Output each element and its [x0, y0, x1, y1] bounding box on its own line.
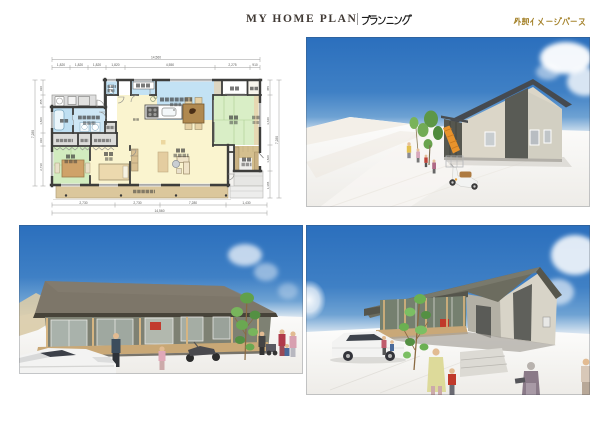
- svg-text:1,820: 1,820: [111, 63, 119, 67]
- svg-text:1,365: 1,365: [266, 181, 270, 189]
- svg-text:7,280: 7,280: [275, 136, 279, 144]
- svg-text:910: 910: [39, 138, 43, 143]
- svg-text:1,820: 1,820: [39, 117, 43, 125]
- svg-text:910: 910: [39, 86, 43, 91]
- svg-text:2,730: 2,730: [79, 201, 87, 205]
- svg-text:1,820: 1,820: [75, 63, 83, 67]
- svg-text:1,820: 1,820: [266, 155, 270, 163]
- svg-text:455: 455: [266, 86, 270, 91]
- svg-text:2,730: 2,730: [133, 201, 141, 205]
- svg-text:1,820: 1,820: [93, 63, 101, 67]
- svg-text:910: 910: [252, 63, 258, 67]
- svg-text:14,560: 14,560: [154, 209, 164, 213]
- svg-text:4,550: 4,550: [166, 63, 174, 67]
- svg-text:7,280: 7,280: [31, 130, 35, 138]
- svg-text:14,560: 14,560: [151, 55, 161, 59]
- svg-text:7,280: 7,280: [189, 201, 197, 205]
- svg-text:2,275: 2,275: [228, 63, 236, 67]
- svg-text:1,430: 1,430: [242, 201, 250, 205]
- svg-text:455: 455: [39, 99, 43, 104]
- svg-text:1,820: 1,820: [57, 63, 65, 67]
- svg-text:2,730: 2,730: [39, 163, 43, 171]
- svg-text:3,640: 3,640: [266, 117, 270, 125]
